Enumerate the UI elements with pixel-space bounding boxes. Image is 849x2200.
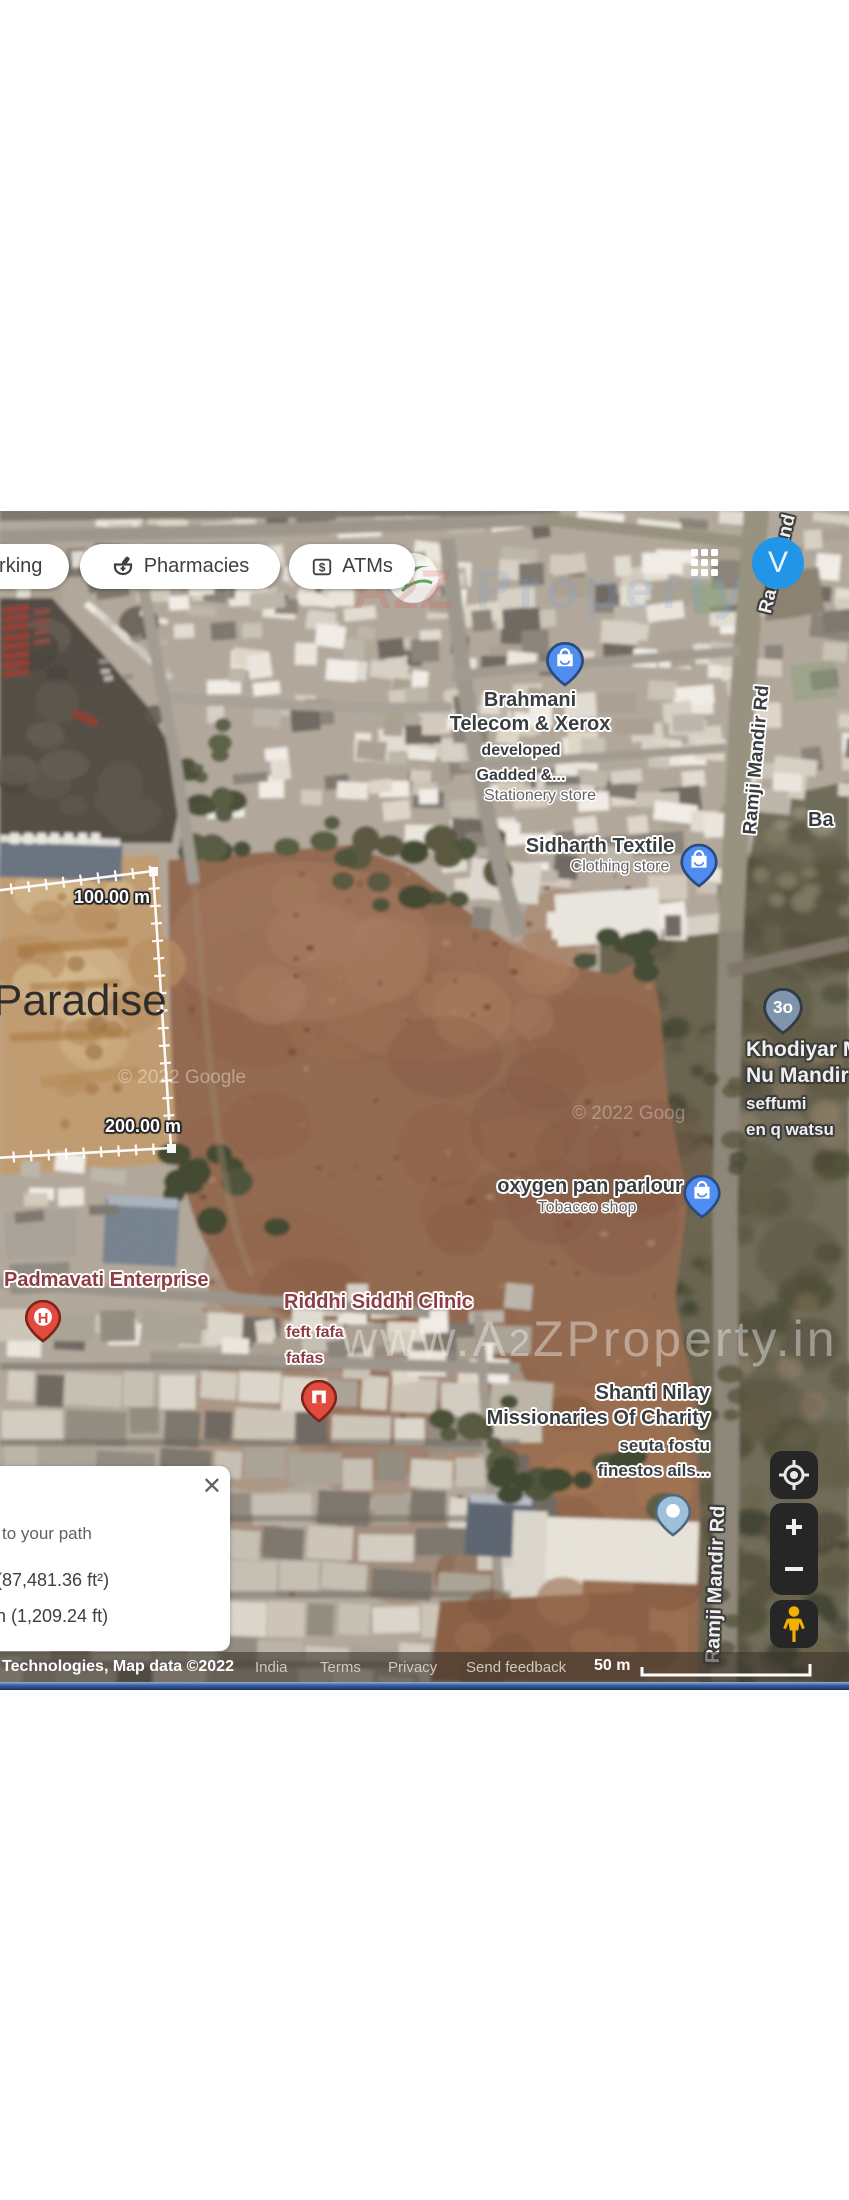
svg-text:$: $ [319, 560, 326, 574]
svg-text:H: H [38, 1311, 49, 1327]
svg-text:3o: 3o [773, 997, 793, 1017]
